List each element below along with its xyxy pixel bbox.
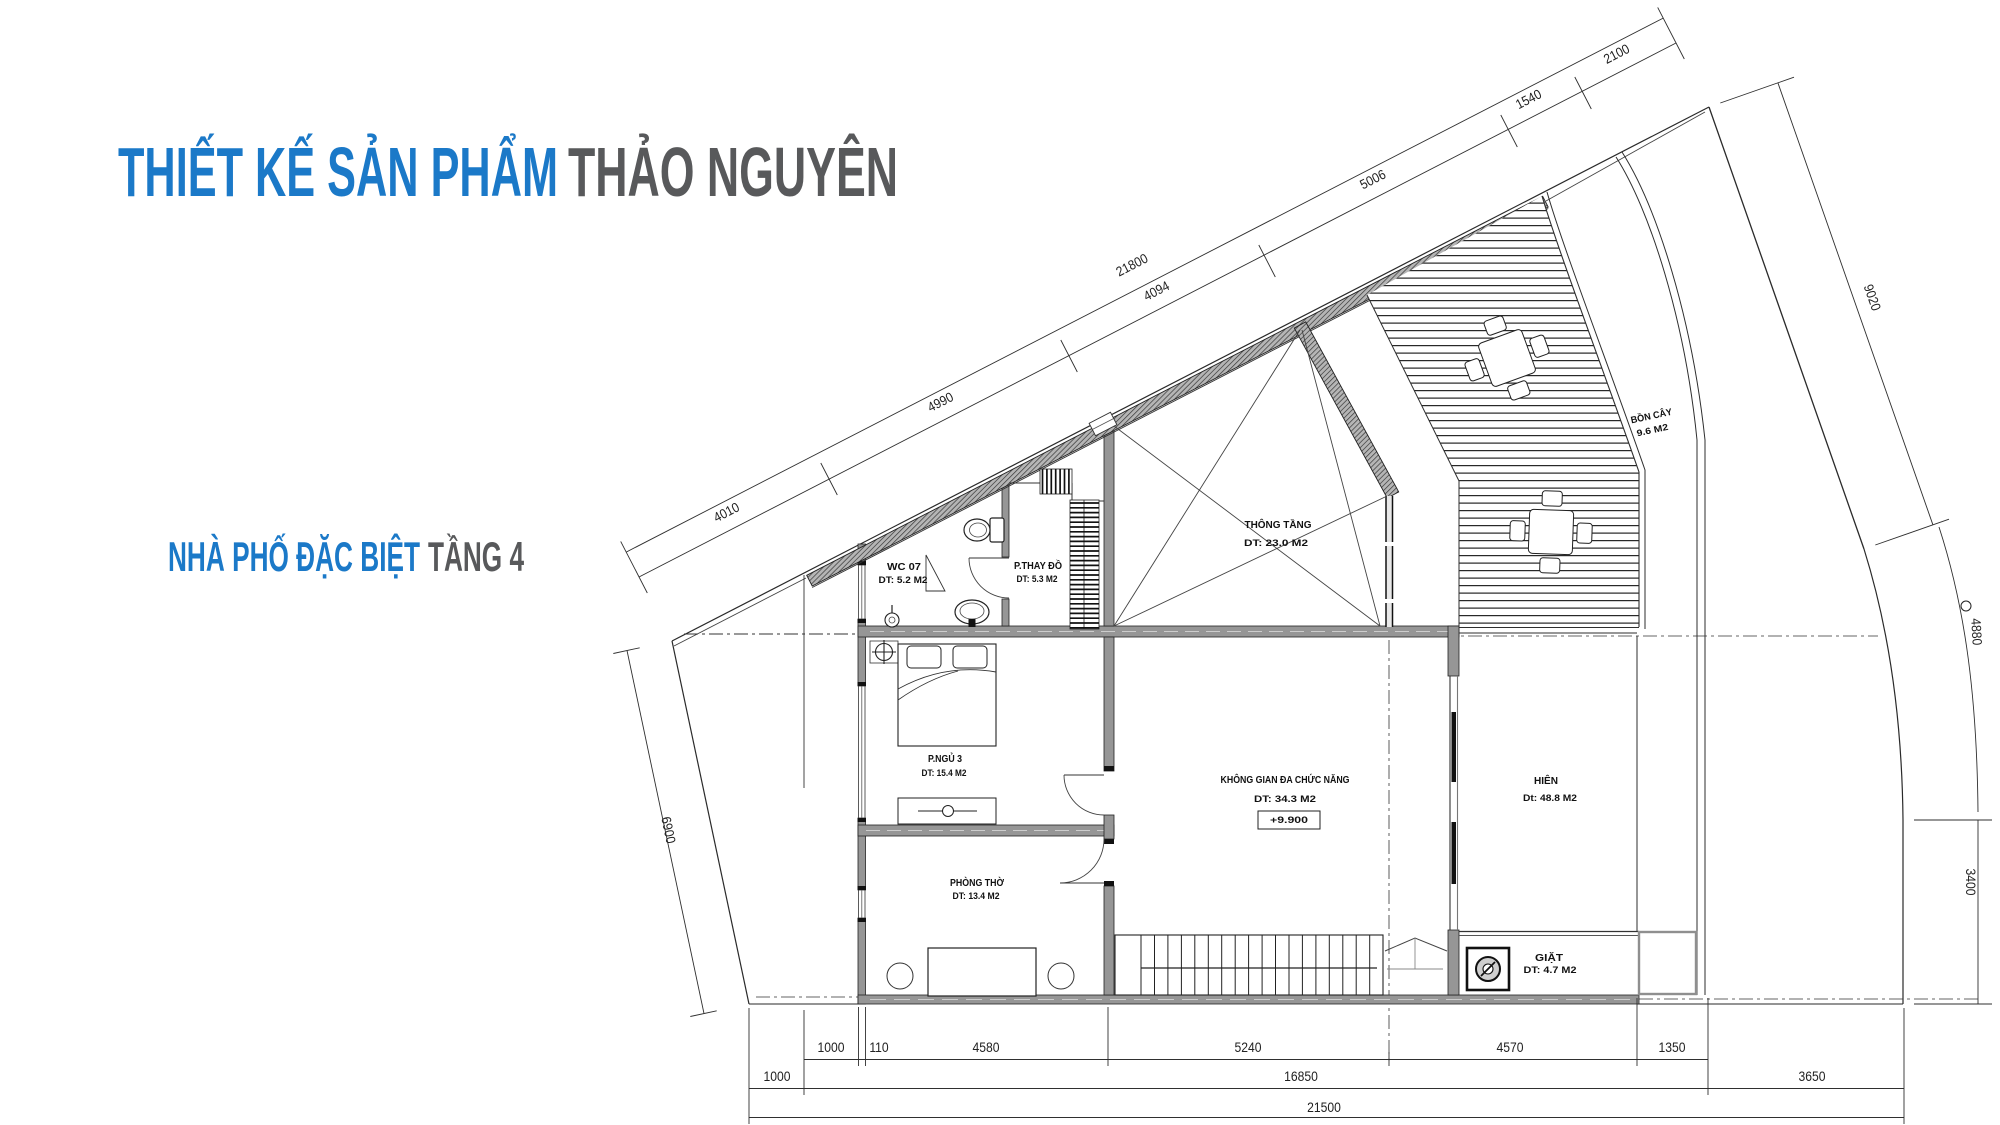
svg-text:16850: 16850: [1284, 1068, 1318, 1084]
svg-text:THẢO NGUYÊN: THẢO NGUYÊN: [568, 132, 898, 211]
svg-text:NHÀ PHỐ ĐẶC BIỆT: NHÀ PHỐ ĐẶC BIỆT: [168, 532, 420, 580]
svg-text:1000: 1000: [817, 1039, 844, 1055]
svg-text:5240: 5240: [1234, 1039, 1261, 1055]
svg-text:5006: 5006: [1357, 166, 1388, 192]
svg-text:110: 110: [869, 1039, 888, 1055]
svg-text:THIẾT KẾ SẢN PHẨM: THIẾT KẾ SẢN PHẨM: [118, 132, 558, 211]
svg-text:P.NGỦ 3: P.NGỦ 3: [928, 752, 962, 765]
svg-text:6900: 6900: [658, 815, 679, 845]
svg-text:TẦNG 4: TẦNG 4: [428, 533, 524, 580]
svg-text:1540: 1540: [1513, 86, 1544, 112]
svg-text:HIÊN: HIÊN: [1534, 774, 1558, 787]
svg-text:3650: 3650: [1798, 1068, 1825, 1084]
svg-text:KHÔNG GIAN ĐA CHỨC NĂNG: KHÔNG GIAN ĐA CHỨC NĂNG: [1221, 773, 1350, 786]
svg-text:DT: 15.4 M2: DT: 15.4 M2: [922, 768, 967, 779]
svg-text:THÔNG TẦNG: THÔNG TẦNG: [1245, 518, 1312, 531]
svg-text:DT: 34.3 M2: DT: 34.3 M2: [1254, 794, 1316, 805]
svg-text:4990: 4990: [925, 389, 956, 415]
svg-text:1350: 1350: [1658, 1039, 1685, 1055]
svg-text:GIẶT: GIẶT: [1535, 951, 1564, 964]
svg-text:DT: 23.0 M2: DT: 23.0 M2: [1244, 538, 1308, 549]
svg-text:DT: 5.3 M2: DT: 5.3 M2: [1017, 574, 1058, 585]
svg-text:9020: 9020: [1861, 282, 1885, 313]
svg-text:4880: 4880: [1968, 618, 1985, 646]
svg-text:DT: 13.4 M2: DT: 13.4 M2: [953, 891, 1000, 902]
svg-text:3400: 3400: [1963, 868, 1979, 895]
svg-text:Dt: 48.8 M2: Dt: 48.8 M2: [1523, 793, 1577, 804]
svg-text:DT: 5.2 M2: DT: 5.2 M2: [879, 575, 928, 586]
svg-text:21800: 21800: [1113, 250, 1150, 279]
svg-text:2100: 2100: [1601, 41, 1632, 67]
svg-text:WC 07: WC 07: [887, 561, 921, 573]
svg-text:21500: 21500: [1307, 1099, 1341, 1115]
svg-text:4570: 4570: [1496, 1039, 1523, 1055]
svg-text:PHÒNG THỜ: PHÒNG THỜ: [950, 876, 1004, 889]
svg-text:4094: 4094: [1141, 278, 1172, 304]
svg-text:P.THAY ĐỒ: P.THAY ĐỒ: [1014, 559, 1062, 572]
svg-text:4010: 4010: [711, 499, 742, 525]
svg-text:DT: 4.7 M2: DT: 4.7 M2: [1524, 965, 1577, 976]
svg-text:4580: 4580: [972, 1039, 999, 1055]
svg-text:+9.900: +9.900: [1270, 815, 1308, 826]
svg-text:1000: 1000: [763, 1068, 790, 1084]
